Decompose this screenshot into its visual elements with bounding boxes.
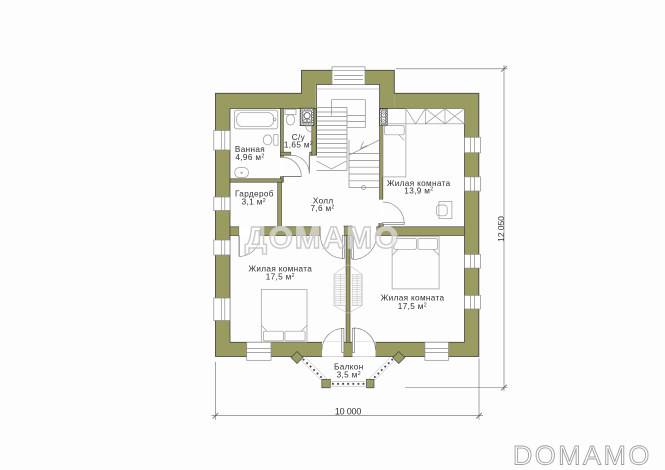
svg-text:ДОМАМО: ДОМАМО — [245, 220, 400, 255]
svg-text:10 000: 10 000 — [335, 407, 362, 417]
svg-text:12 050: 12 050 — [496, 216, 506, 242]
svg-text:1,65 м2: 1,65 м2 — [284, 141, 313, 150]
svg-text:4,96 м2: 4,96 м2 — [235, 153, 264, 162]
svg-text:3,1 м2: 3,1 м2 — [242, 198, 266, 207]
svg-text:DOMAMO: DOMAMO — [513, 440, 652, 470]
svg-text:17,5 м2: 17,5 м2 — [266, 273, 295, 282]
svg-text:3,5 м2: 3,5 м2 — [337, 370, 361, 379]
svg-text:17,5 м2: 17,5 м2 — [398, 302, 427, 311]
svg-text:13,9 м2: 13,9 м2 — [404, 186, 433, 195]
svg-text:7,6 м2: 7,6 м2 — [310, 204, 334, 213]
